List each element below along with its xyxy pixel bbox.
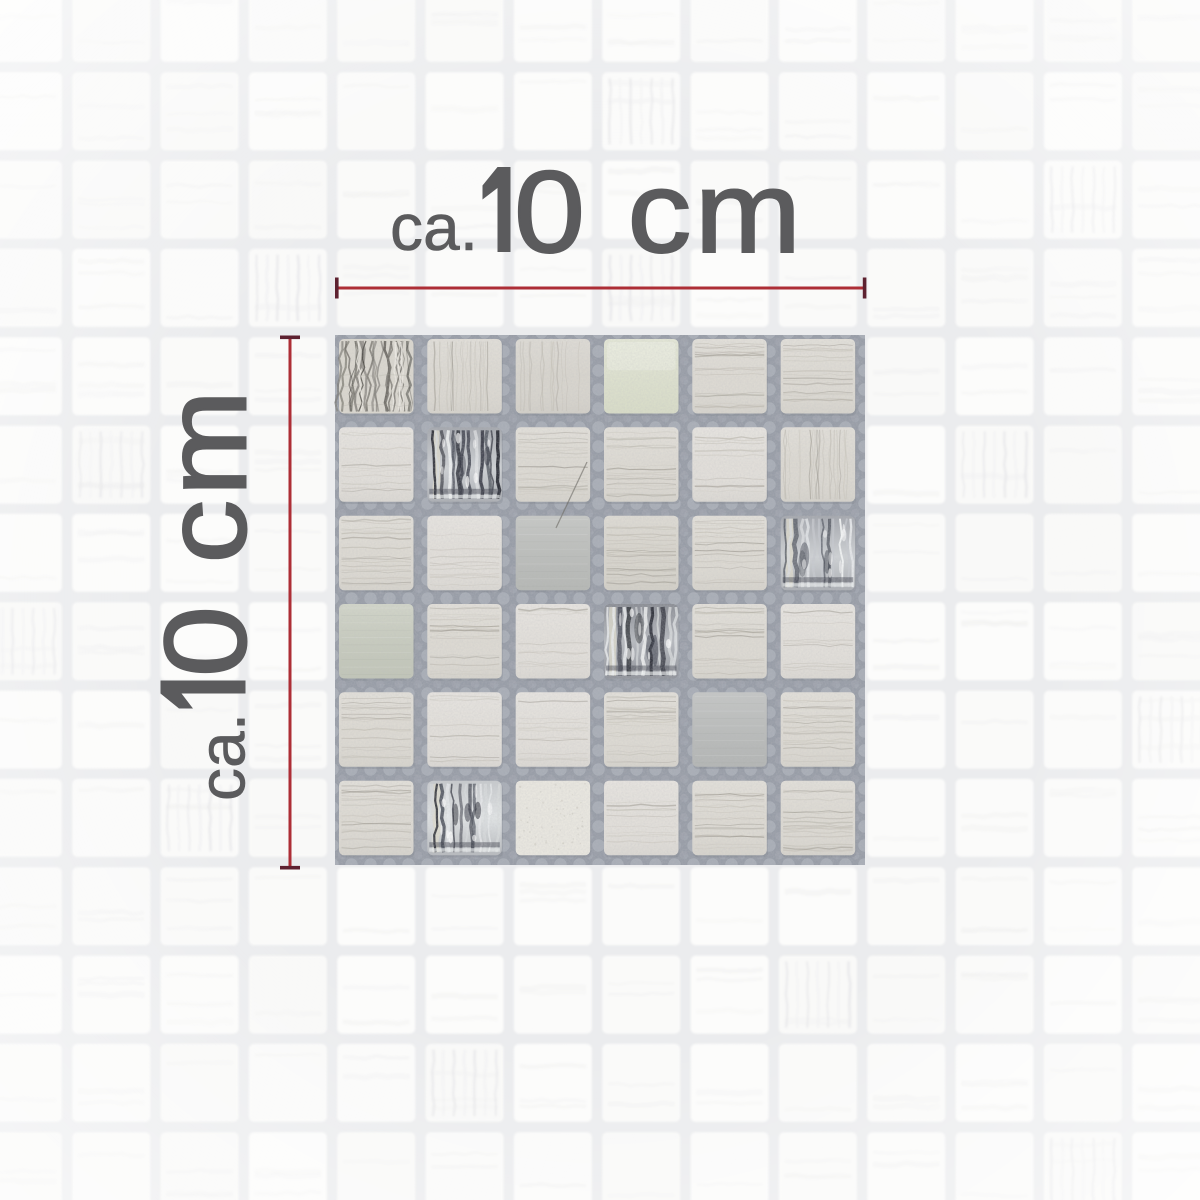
svg-text:0 cm: 0 cm [141, 386, 270, 677]
svg-text:0 cm: 0 cm [514, 147, 805, 276]
svg-text:ca.: ca. [390, 190, 478, 264]
svg-text:ca.: ca. [185, 713, 259, 801]
